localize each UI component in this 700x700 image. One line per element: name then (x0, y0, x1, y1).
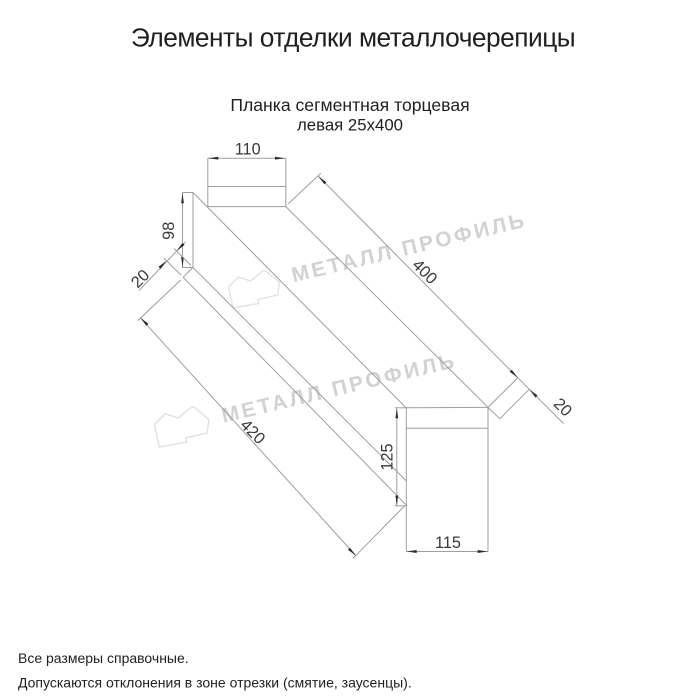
svg-text:110: 110 (235, 141, 261, 159)
svg-text:125: 125 (379, 443, 397, 470)
svg-text:левая 25х400: левая 25х400 (297, 116, 403, 135)
svg-text:Элементы отделки металлочерепи: Элементы отделки металлочерепицы (131, 22, 575, 52)
svg-text:Все размеры справочные.: Все размеры справочные. (18, 650, 189, 666)
svg-text:98: 98 (160, 222, 178, 240)
svg-text:Планка сегментная торцевая: Планка сегментная торцевая (230, 95, 469, 115)
svg-text:115: 115 (435, 534, 461, 552)
svg-text:Допускаются отклонения в зоне: Допускаются отклонения в зоне отрезки (с… (18, 675, 412, 691)
